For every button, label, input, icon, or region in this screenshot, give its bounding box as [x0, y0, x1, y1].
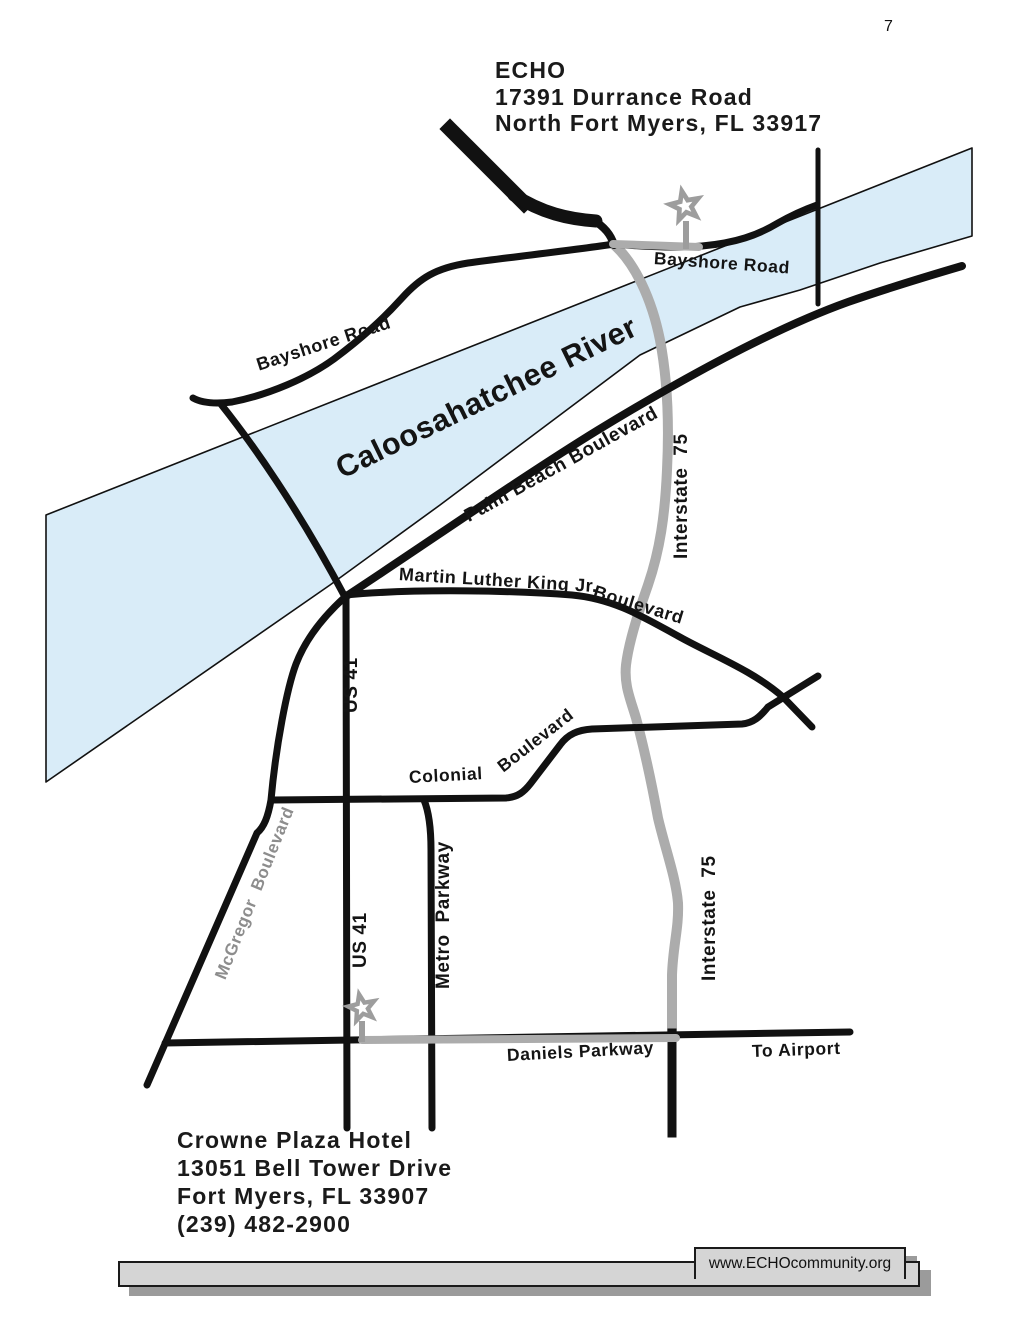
echo-org-name: ECHO	[495, 57, 822, 84]
hotel-phone: (239) 482-2900	[177, 1210, 452, 1238]
label-interstate-75-north: Interstate 75	[672, 433, 691, 559]
echo-star-icon	[660, 180, 709, 228]
caloosahatchee-river-band	[46, 148, 972, 782]
page-number: 7	[884, 18, 893, 36]
map-page: 7 ECHO 17391 Durrance Road North Fort My…	[0, 0, 1024, 1325]
label-us41-north: US 41	[342, 657, 361, 713]
label-to-airport: To Airport	[752, 1040, 841, 1061]
label-interstate-75-south: Interstate 75	[700, 855, 719, 981]
label-colonial: Colonial	[409, 765, 484, 786]
road-approach-bar	[514, 195, 596, 221]
label-us41-south: US 41	[351, 912, 370, 968]
road-metro-parkway	[424, 800, 432, 1128]
echo-address-line2: North Fort Myers, FL 33917	[495, 110, 822, 137]
echo-address-line1: 17391 Durrance Road	[495, 84, 822, 111]
footer-url: www.ECHOcommunity.org	[709, 1255, 891, 1273]
label-metro-parkway: Metro Parkway	[434, 841, 453, 989]
road-mlk-blvd	[345, 591, 812, 727]
footer-url-tab: www.ECHOcommunity.org	[694, 1247, 906, 1279]
hotel-address-line2: Fort Myers, FL 33907	[177, 1182, 452, 1210]
hotel-name: Crowne Plaza Hotel	[177, 1126, 452, 1154]
hotel-address-line1: 13051 Bell Tower Drive	[177, 1154, 452, 1182]
road-map-drawing	[0, 0, 1024, 1325]
echo-address-block: ECHO 17391 Durrance Road North Fort Myer…	[495, 57, 822, 137]
hotel-address-block: Crowne Plaza Hotel 13051 Bell Tower Driv…	[177, 1126, 452, 1238]
